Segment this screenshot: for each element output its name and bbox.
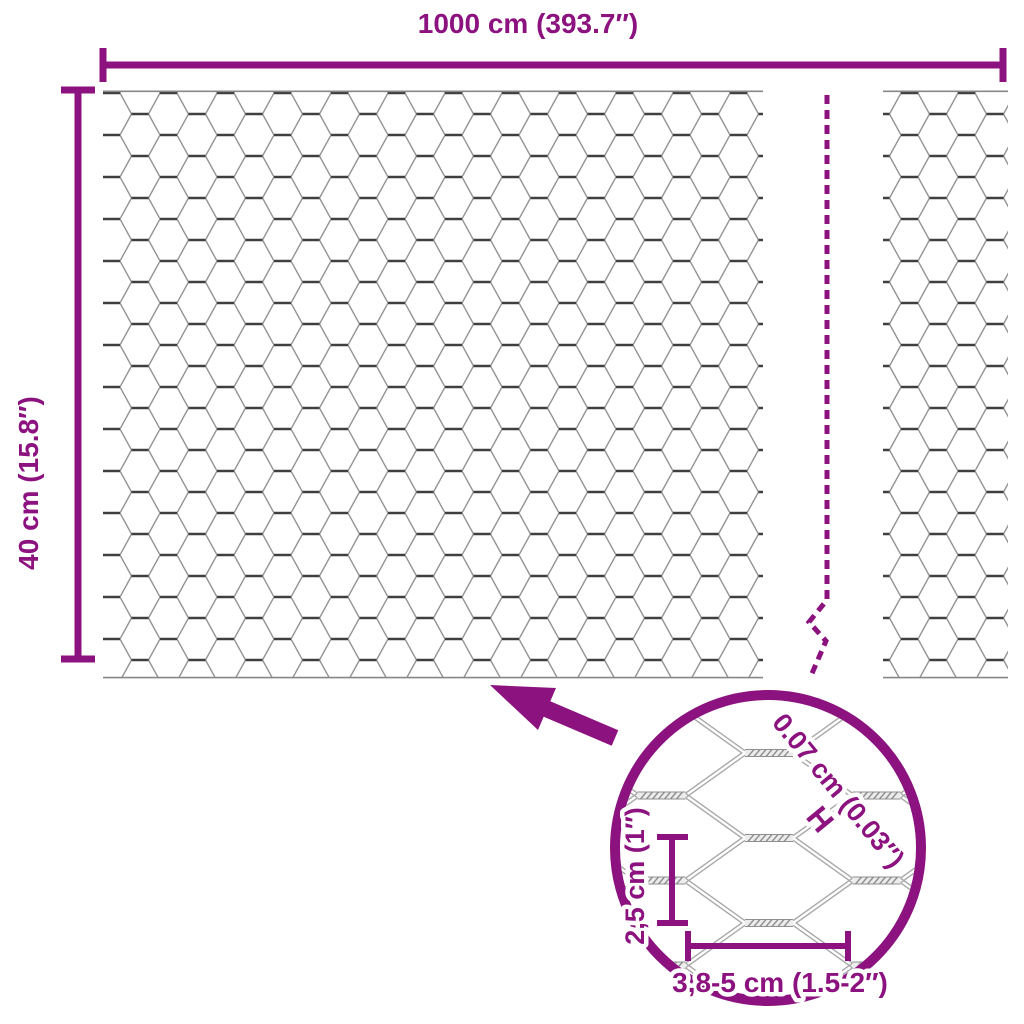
width-dimension: 1000 cm (393.7″): [103, 8, 1003, 82]
mesh-roll: [103, 91, 1008, 678]
diagram-canvas: 1000 cm (393.7″) 40 cm (15.8″) H 0.07 cm…: [0, 0, 1024, 1024]
height-dimension: 40 cm (15.8″): [13, 90, 95, 659]
product-dimension-diagram: 1000 cm (393.7″) 40 cm (15.8″) H 0.07 cm…: [0, 0, 1024, 1024]
width-dimension-line: [103, 48, 1003, 82]
height-dimension-label: 40 cm (15.8″): [13, 396, 44, 570]
mesh-width-dimension-label: 3,8-5 cm (1.5-2″): [672, 967, 888, 998]
detail-arrow-icon: [490, 685, 618, 746]
mesh-panel-main: [103, 91, 763, 678]
height-dimension-line: [61, 90, 95, 659]
mesh-panel-right: [883, 91, 1008, 678]
mesh-height-dimension-label: 2,5 cm (1″): [620, 807, 650, 945]
detail-circle: H 0.07 cm (0.03″) 2,5 cm (1″) 3,8-5 cm (…: [612, 692, 924, 1004]
width-dimension-label: 1000 cm (393.7″): [418, 8, 638, 39]
break-line: [809, 95, 827, 678]
